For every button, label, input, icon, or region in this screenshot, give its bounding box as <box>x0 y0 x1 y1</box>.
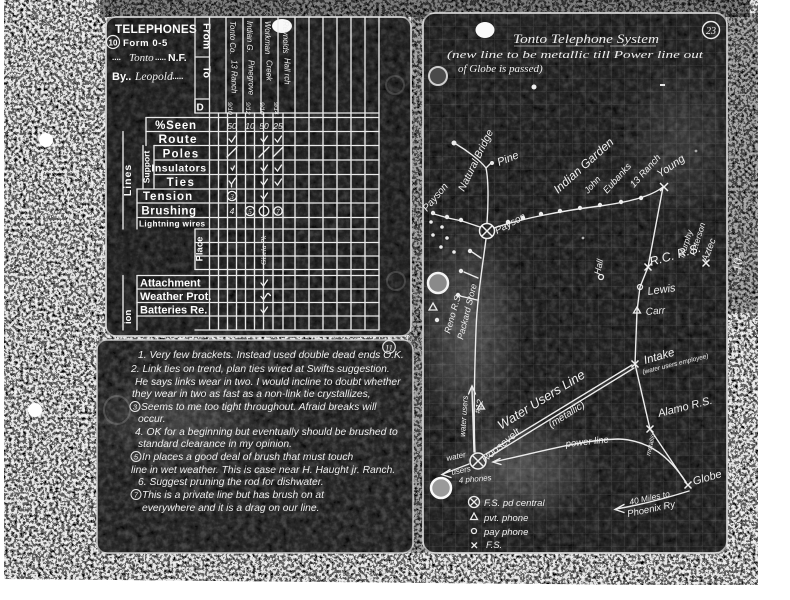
svg-text:13 Ranch: 13 Ranch <box>230 60 239 93</box>
svg-text:-10-: -10- <box>729 253 746 276</box>
svg-text:pay phone: pay phone <box>483 527 528 538</box>
svg-text:Lines: Lines <box>122 164 134 196</box>
svg-text:Tonto Telephone System: Tonto Telephone System <box>513 31 659 46</box>
svg-text:Tonto: Tonto <box>129 52 154 64</box>
svg-text:N.F.: N.F. <box>168 52 187 64</box>
svg-text:He says links wear in two. I w: He says links wear in two. I would incli… <box>135 377 401 388</box>
svg-text:4. OK for a beginning but even: 4. OK for a beginning but eventually sho… <box>135 427 398 438</box>
svg-text:7: 7 <box>276 208 280 216</box>
svg-text:D: D <box>197 103 204 114</box>
svg-text:Attachment: Attachment <box>140 278 201 290</box>
svg-text:they wear in two as fast as a: they wear in two as fast as a non-link t… <box>132 389 371 400</box>
svg-text:This is a private line but has: This is a private line but has brush on … <box>142 490 325 501</box>
svg-text:F.S. pd central: F.S. pd central <box>484 498 545 509</box>
svg-text:5: 5 <box>248 207 252 216</box>
svg-text:Carr: Carr <box>645 305 666 318</box>
svg-text:50: 50 <box>227 121 237 131</box>
svg-text:Ties: Ties <box>167 177 196 189</box>
svg-text:%Seen: %Seen <box>155 120 197 132</box>
svg-text:Leopold: Leopold <box>134 71 173 83</box>
svg-text:By..: By.. <box>112 71 131 83</box>
svg-text:To: To <box>201 66 213 78</box>
svg-text:Place: Place <box>195 237 206 262</box>
svg-text:Reynolds: Reynolds <box>281 21 290 54</box>
svg-text:Tonto Co.: Tonto Co. <box>228 21 237 55</box>
svg-text:Route: Route <box>159 132 198 146</box>
svg-text:Workman: Workman <box>263 21 272 54</box>
svg-text:(new line to be metallic till: (new line to be metallic till Power line… <box>447 49 704 61</box>
svg-text:TELEPHONES: TELEPHONES <box>115 22 197 36</box>
svg-text:In places a good deal of brush: In places a good deal of brush that must… <box>142 452 353 463</box>
svg-text:Weather Prot.: Weather Prot. <box>140 291 211 303</box>
svg-text:Brushing: Brushing <box>141 206 196 218</box>
svg-text:10: 10 <box>245 121 255 131</box>
svg-text:From: From <box>201 23 213 49</box>
svg-text:Form 0-5: Form 0-5 <box>123 38 168 49</box>
svg-text:Indian G.: Indian G. <box>245 21 254 53</box>
svg-text:Tension: Tension <box>143 191 193 203</box>
svg-text:Insulators: Insulators <box>151 163 206 175</box>
svg-text:......: ...... <box>170 72 183 81</box>
svg-text:Poles: Poles <box>163 149 200 161</box>
svg-text:of Globe is passed): of Globe is passed) <box>458 63 543 75</box>
svg-text:Pinegrove: Pinegrove <box>247 60 256 96</box>
svg-text:4: 4 <box>230 206 235 216</box>
svg-text:3: 3 <box>229 192 234 201</box>
svg-text:Support: Support <box>142 151 152 184</box>
svg-text:Creek: Creek <box>265 60 274 82</box>
svg-text:occur.: occur. <box>138 414 166 425</box>
svg-text:pvt. phone: pvt. phone <box>483 513 528 524</box>
svg-text:1. Very few brackets. Instead: 1. Very few brackets. Instead used doubl… <box>138 350 404 361</box>
svg-text:F.S.: F.S. <box>486 540 502 551</box>
svg-text:....: .... <box>112 53 121 62</box>
svg-text:Lightning wires: Lightning wires <box>139 220 206 229</box>
svg-text:10: 10 <box>109 39 118 48</box>
svg-text:25: 25 <box>272 121 283 131</box>
svg-text:6. Suggest pruning the rod for: 6. Suggest pruning the rod for dishwater… <box>138 477 324 488</box>
svg-text:2. Link ties on trend, plan ti: 2. Link ties on trend, plan ties wired a… <box>130 364 390 375</box>
svg-text:Batteries Re.: Batteries Re. <box>140 305 207 317</box>
svg-text:standard clearance in my opini: standard clearance in my opinion. <box>138 439 292 450</box>
svg-text:ion: ion <box>123 310 134 324</box>
svg-text:50: 50 <box>259 121 269 131</box>
svg-text:Gisela Pk: Gisela Pk <box>259 235 268 265</box>
svg-text:line in wet weather. This is c: line in wet weather. This is case near H… <box>131 465 395 476</box>
svg-text:everywhere and it is a drag on: everywhere and it is a drag on our line. <box>142 503 319 514</box>
svg-text:23: 23 <box>706 26 716 37</box>
svg-text:Seems to me too tight througho: Seems to me too tight throughout. Afraid… <box>141 402 377 413</box>
svg-text:.....: ..... <box>155 53 166 62</box>
svg-text:Hall rch: Hall rch <box>283 58 292 84</box>
